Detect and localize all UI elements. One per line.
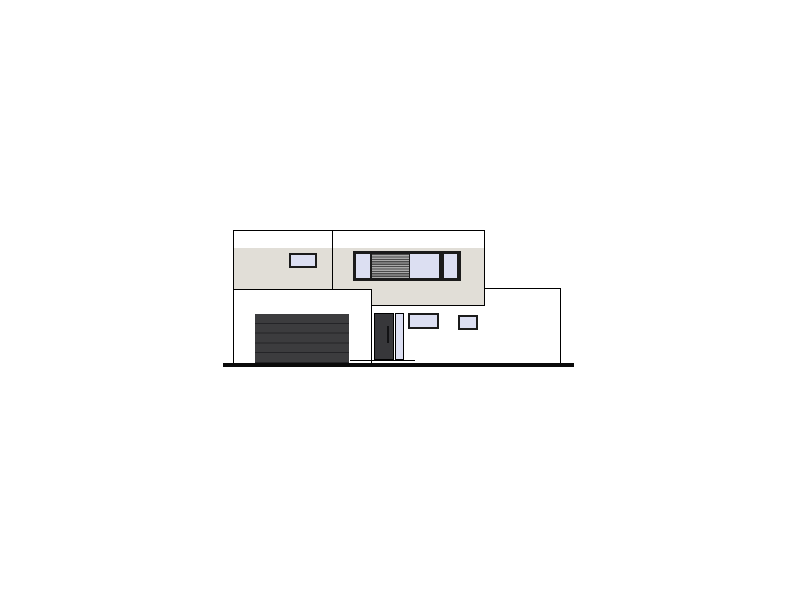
elevation-drawing <box>0 0 800 600</box>
side-window <box>458 315 478 330</box>
parapet-band <box>234 231 484 248</box>
facade-divider-line <box>332 231 333 289</box>
entry-window <box>408 313 439 329</box>
ground-line <box>223 363 574 367</box>
ribbon-window-center-pane <box>410 254 439 278</box>
ribbon-window <box>353 251 461 281</box>
ribbon-window-left-pane <box>356 254 370 278</box>
entry-door-assembly <box>374 313 404 360</box>
ribbon-window-right-pane <box>444 254 457 278</box>
upper-left-window <box>289 253 317 268</box>
garage-door <box>255 314 349 363</box>
right-wing <box>485 288 561 363</box>
door-sidelight <box>395 313 404 360</box>
door-handle <box>387 326 389 343</box>
entry-door <box>374 313 394 360</box>
window-louver-shutter <box>372 254 409 278</box>
porch-step-line <box>350 360 415 361</box>
